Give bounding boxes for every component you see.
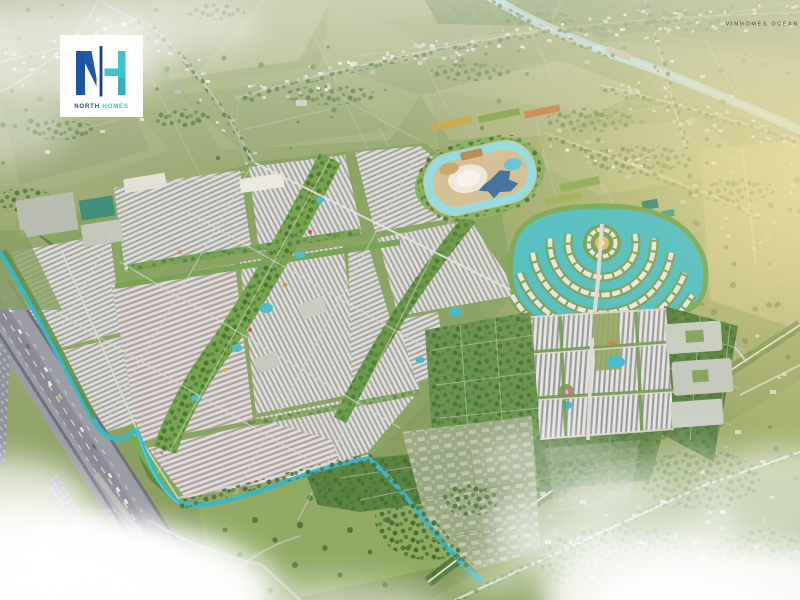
svg-text:Vinhomes Ocean Park - The hear: Vinhomes Ocean Park - The heart of the n… (4, 515, 115, 520)
svg-text:NORTH HOMES: NORTH HOMES (74, 103, 129, 110)
svg-text:www.northhomes.vn - Hotline 09: www.northhomes.vn - Hotline 0968 xxx xxx (4, 522, 85, 527)
svg-text:Khu do thi sinh thai thong min: Khu do thi sinh thai thong minh - Dai do… (4, 508, 117, 513)
svg-text:VINHOMES OCEAN: VINHOMES OCEAN (726, 22, 799, 28)
